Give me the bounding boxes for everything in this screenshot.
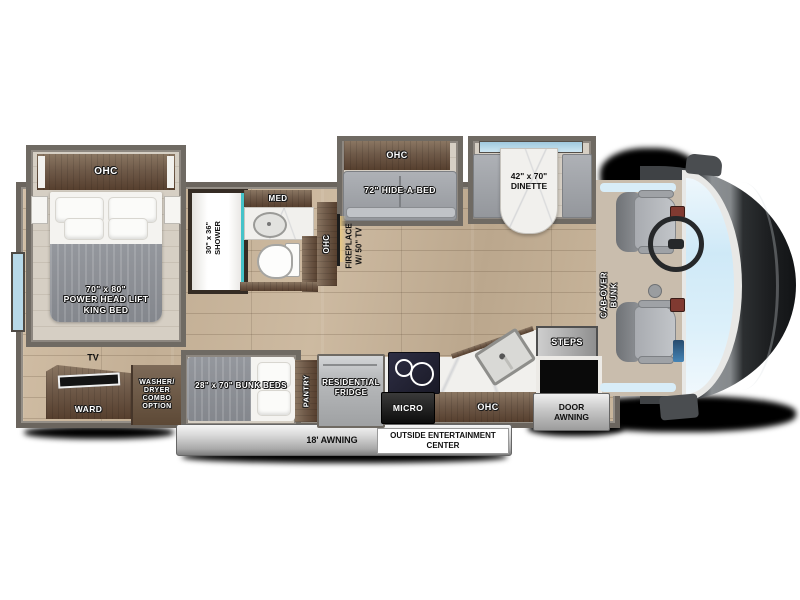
med-label: MED <box>269 194 288 204</box>
sofa-overhead-cabinet: OHC <box>344 141 450 170</box>
hall-ohc-label: OHC <box>322 214 332 274</box>
washer-dryer: WASHER/ DRYER COMBO OPTION <box>131 365 181 425</box>
bedroom-ohc-label: OHC <box>94 166 117 178</box>
rear-window <box>11 252 25 332</box>
tv-label: TV <box>87 353 99 364</box>
king-bed-label: 70" x 80" POWER HEAD LIFT KING BED <box>50 284 162 315</box>
microwave: MICRO <box>381 392 435 424</box>
shower-label: 30" x 36" SHOWER <box>204 198 222 278</box>
washer-dryer-label: WASHER/ DRYER COMBO OPTION <box>139 379 174 411</box>
entry-steps: STEPS <box>536 326 598 358</box>
medicine-cabinet: MED <box>244 190 312 207</box>
bath-wall <box>240 282 318 291</box>
dinette-bench <box>562 154 592 218</box>
outside-entertainment-label: OUTSIDE ENTERTAINMENT CENTER <box>390 431 496 451</box>
fireplace-label: FIREPLACE W/ 50" TV <box>344 198 364 294</box>
hood-gloss <box>742 182 779 390</box>
cabinet-endcap <box>167 156 174 188</box>
door-awning: DOOR AWNING <box>533 393 610 431</box>
kitchen-ohc-label: OHC <box>477 402 498 413</box>
rv-floorplan: OHC 70" x 80" POWER HEAD LIFT KING BED 3… <box>0 0 800 600</box>
dash-knob <box>648 284 662 298</box>
tv-fireplace-screen <box>337 214 340 266</box>
cooktop <box>388 352 440 394</box>
cab-side-window <box>600 383 676 392</box>
dash-console <box>670 298 685 312</box>
driver-seat <box>616 300 678 364</box>
nightstand <box>31 196 48 224</box>
sofa-ohc-label: OHC <box>386 150 407 161</box>
micro-label: MICRO <box>393 403 423 413</box>
patio-awning-bar: 18' AWNING OUTSIDE ENTERTAINMENT CENTER <box>176 424 512 456</box>
dinette-table: 42" x 70" DINETTE <box>500 148 558 234</box>
kitchen-overhead-cabinet: OHC <box>433 392 543 422</box>
dash-console <box>673 340 684 362</box>
cabinet-endcap <box>38 156 45 188</box>
dinette-label: 42" x 70" DINETTE <box>494 171 564 192</box>
hide-a-bed-label: 72" HIDE-A-BED <box>344 185 456 195</box>
bedroom-slideout: OHC 70" x 80" POWER HEAD LIFT KING BED <box>26 145 186 347</box>
toilet <box>257 241 303 279</box>
nightstand <box>164 196 181 224</box>
tv-screen <box>58 372 121 388</box>
door-awning-label: DOOR AWNING <box>554 402 589 423</box>
cab-over-bunk-label: CAB-OVER BUNK <box>599 257 619 333</box>
side-mirror <box>659 393 699 420</box>
residential-fridge: RESIDENTIAL FRIDGE <box>317 354 385 428</box>
bunk-slideout: 28" x 70" BUNK BEDS <box>181 350 301 430</box>
awning-label: 18' AWNING <box>267 425 397 455</box>
side-mirror <box>685 153 723 177</box>
bedroom-overhead-cabinet: OHC <box>37 154 175 190</box>
king-bed: 70" x 80" POWER HEAD LIFT KING BED <box>50 192 162 322</box>
tv-wardrobe-cabinet: WARD <box>46 365 131 419</box>
bath-sink <box>253 212 287 238</box>
fridge-label: RESIDENTIAL FRIDGE <box>318 378 384 398</box>
outside-entertainment-box: OUTSIDE ENTERTAINMENT CENTER <box>377 428 509 454</box>
steering-wheel <box>648 216 704 272</box>
pantry-label: PANTRY <box>301 363 310 419</box>
wardrobe-label: WARD <box>49 404 129 414</box>
bunk-beds-label: 28" x 70" BUNK BEDS <box>183 381 299 391</box>
steps-label: STEPS <box>551 337 583 348</box>
